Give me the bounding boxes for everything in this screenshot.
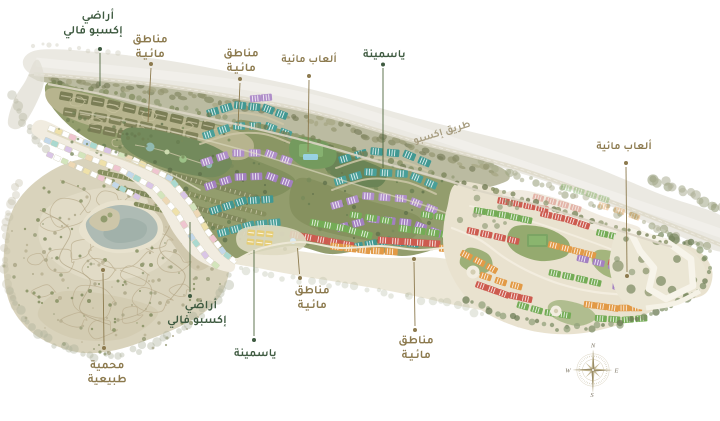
svg-text:E: E — [614, 368, 619, 375]
svg-text:N: N — [590, 343, 596, 350]
svg-text:W: W — [565, 368, 571, 375]
